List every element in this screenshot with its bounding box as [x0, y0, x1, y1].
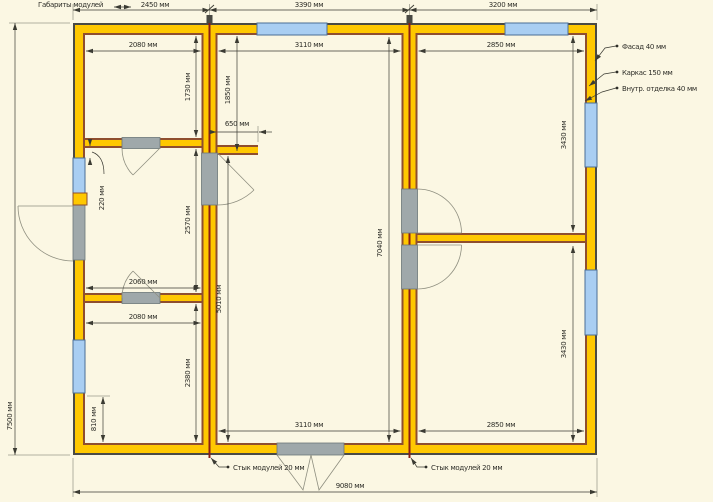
dim-module-2: 3390 мм	[295, 1, 324, 9]
joint-top-tick	[207, 15, 213, 23]
callout-facade: Фасад 40 мм	[622, 43, 666, 51]
callout-dot	[616, 45, 619, 48]
dim-stub-length: 650 мм	[225, 120, 249, 128]
door-left-exterior	[73, 205, 85, 260]
floor-plan-drawing: Габариты модулей 2450 мм 3390 мм 3200 мм…	[0, 0, 713, 502]
dim-hall-height: 1850 мм	[224, 76, 232, 105]
dim-window-sill: 810 мм	[90, 407, 98, 431]
dim-room-bl-width: 2080 мм	[129, 313, 158, 321]
entrance-double-door	[277, 443, 344, 455]
door-joint2-lower	[402, 245, 418, 289]
window-top-center	[257, 23, 327, 35]
dim-room-ml-height: 2570 мм	[184, 206, 192, 235]
joint-top-tick	[407, 15, 413, 23]
hall-stub-wall	[218, 145, 259, 155]
callout-inner-finish: Внутр. отделка 40 мм	[622, 85, 697, 93]
callout-dot	[227, 466, 230, 469]
joint-line	[409, 18, 411, 458]
dim-room-tr-height: 3430 мм	[560, 121, 568, 150]
dim-overall-width: 9080 мм	[336, 482, 365, 490]
module-joint-callouts: Стык модулей 20 мм Стык модулей 20 мм	[211, 458, 502, 472]
callout-dot	[425, 466, 428, 469]
dim-room-tl-width: 2080 мм	[129, 41, 158, 49]
callout-dot	[616, 71, 619, 74]
door-swing-entrance	[277, 455, 344, 490]
joint-line	[209, 18, 211, 458]
window-right-upper	[585, 103, 597, 167]
dim-center-bottom-width: 3110 мм	[295, 421, 324, 429]
callout-joint-left: Стык модулей 20 мм	[233, 464, 304, 472]
dim-center-full-height: 7040 мм	[376, 229, 384, 258]
door-swing-left-exterior	[18, 206, 73, 261]
window-top-right	[505, 23, 568, 35]
dim-wall-offset: 220 мм	[98, 186, 106, 210]
dim-room-bl-height: 2380 мм	[184, 359, 192, 388]
callout-frame: Каркас 150 мм	[622, 69, 673, 77]
callout-dot	[616, 87, 619, 90]
dim-room-br-height: 3430 мм	[560, 330, 568, 359]
legend-label: Габариты модулей	[38, 1, 103, 9]
window-right-lower	[585, 270, 597, 335]
right-partition-wall	[418, 233, 586, 243]
dim-room-tr-width: 2850 мм	[487, 41, 516, 49]
dimension-top-modules: Габариты модулей 2450 мм 3390 мм 3200 мм	[38, 1, 597, 20]
window-left-upper	[73, 158, 85, 193]
door-joint2-upper	[402, 189, 418, 233]
dimension-overall-height: 7500 мм	[6, 23, 70, 455]
module-joint-wall-right	[402, 15, 418, 458]
dim-center-inner-height: 5010 мм	[215, 285, 223, 314]
dimension-overall-width: 9080 мм	[73, 458, 597, 497]
wall-layer-callouts: Фасад 40 мм Каркас 150 мм Внутр. отделка…	[585, 43, 697, 101]
dim-room-br-width: 2850 мм	[487, 421, 516, 429]
door-joint1	[202, 153, 218, 205]
module-joint-wall-left	[202, 15, 218, 458]
window-left-lower	[73, 340, 85, 393]
dim-room-ml-width: 2060 мм	[129, 278, 158, 286]
dim-module-3: 3200 мм	[489, 1, 518, 9]
door-partition-lower	[122, 293, 160, 304]
dim-room-tl-height: 1730 мм	[184, 73, 192, 102]
dim-center-top-width: 3110 мм	[295, 41, 324, 49]
dim-module-1: 2450 мм	[141, 1, 170, 9]
dim-overall-height: 7500 мм	[6, 402, 14, 431]
wall-pier	[73, 193, 87, 205]
door-partition-upper	[122, 138, 160, 149]
callout-joint-right: Стык модулей 20 мм	[431, 464, 502, 472]
